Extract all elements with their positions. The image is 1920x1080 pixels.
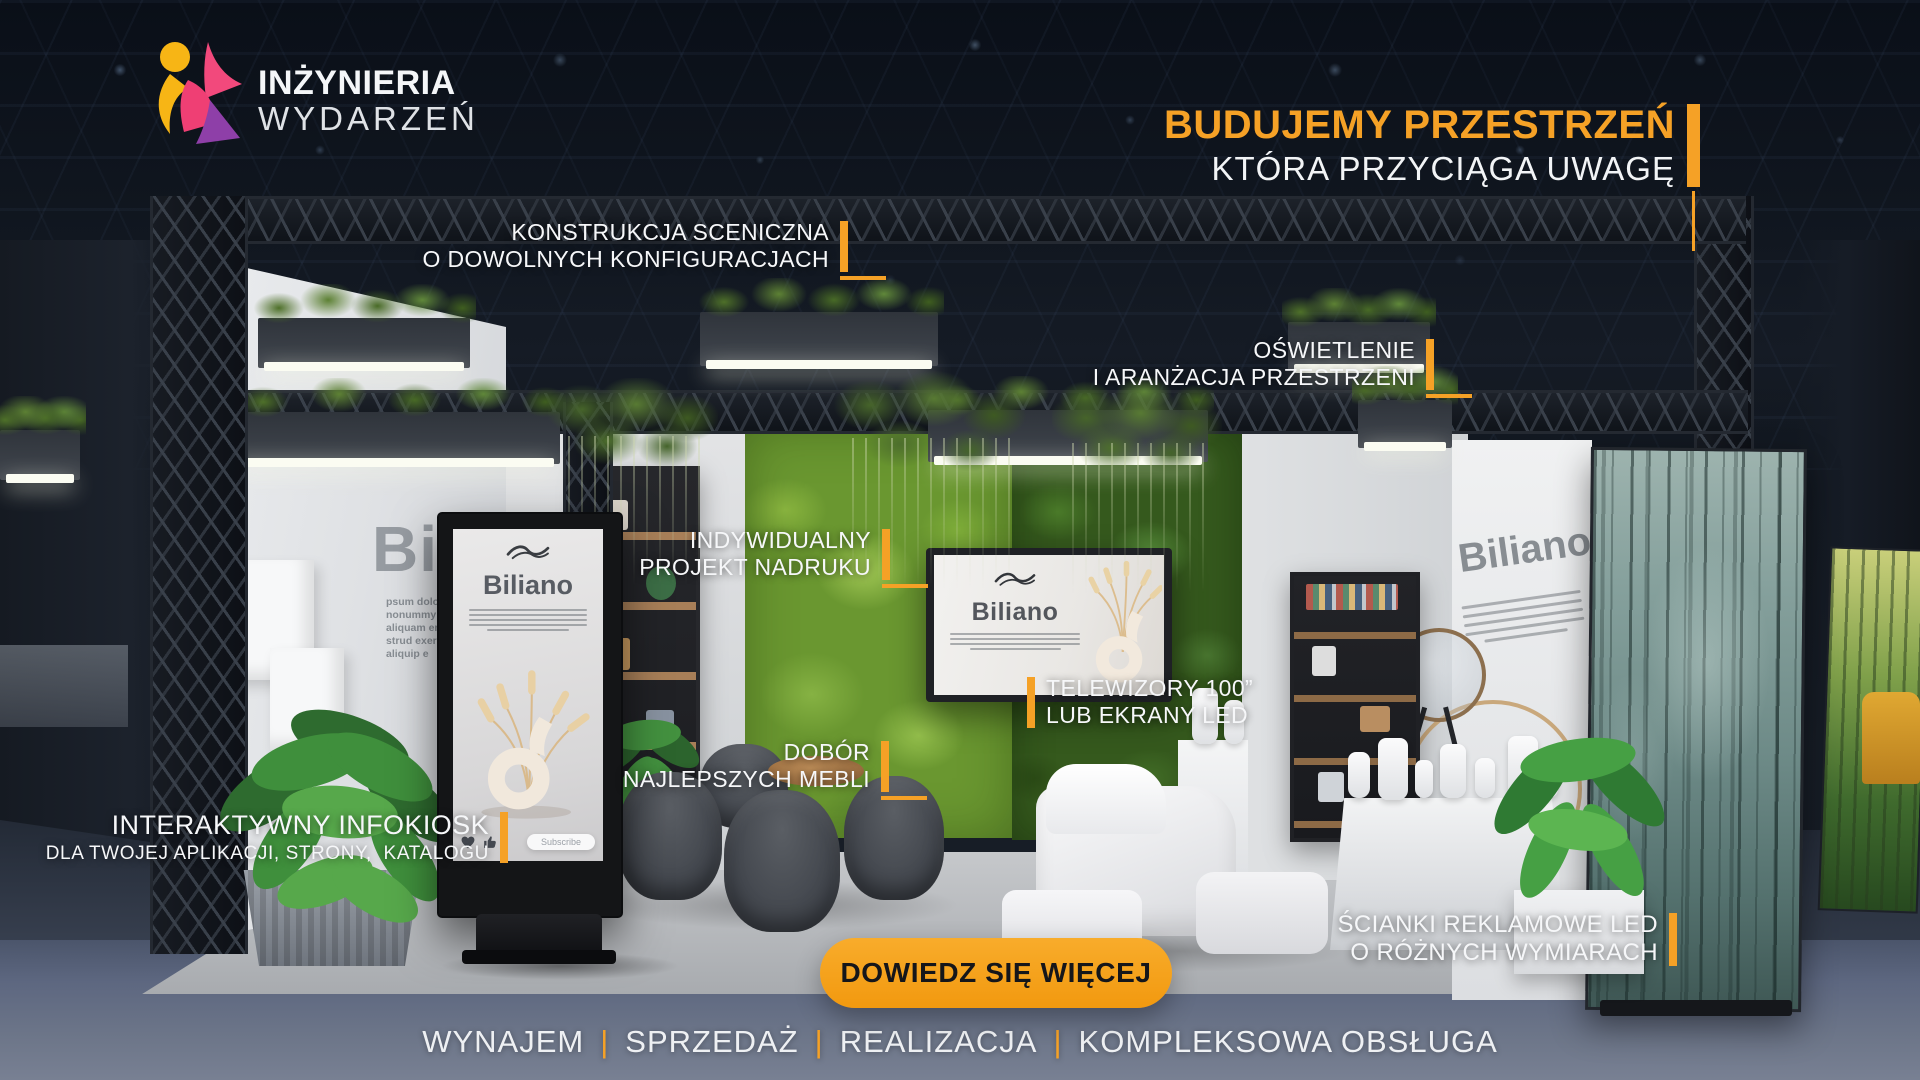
- truss-beam-top: [150, 196, 1746, 244]
- callout-dobor-mebli: DOBÓR NAJLEPSZYCH MEBLI: [623, 741, 889, 792]
- callout-text: INTERAKTYWNY INFOKIOSK DLA TWOJEJ APLIKA…: [46, 812, 489, 863]
- callout-line1: DOBÓR: [623, 741, 870, 764]
- company-logo: INŻYNIERIA WYDARZEŃ: [148, 40, 479, 150]
- service-separator: |: [1053, 1024, 1062, 1060]
- display-vase: [1440, 744, 1466, 798]
- headline-line2: KTÓRA PRZYCIĄGA UWAGĘ: [1164, 151, 1675, 187]
- callout-line2: O RÓŻNYCH WYMIARACH: [1338, 941, 1658, 965]
- display-vase: [1348, 752, 1370, 798]
- background-counter: [0, 645, 128, 727]
- kiosk-paragraph-placeholder: [469, 609, 587, 631]
- callout-accent-bar: [1669, 913, 1677, 966]
- biliano-wave-icon: [505, 541, 551, 563]
- potted-plant-right: [1478, 700, 1678, 930]
- callout-text: TELEWIZORY 100” LUB EKRANY LED: [1046, 677, 1253, 728]
- kiosk-brand-text: Biliano: [453, 570, 603, 601]
- hanging-plants: [830, 366, 1030, 496]
- tv-paragraph-placeholder: [950, 633, 1080, 650]
- text-line: [487, 629, 570, 631]
- callout-line1: INTERAKTYWNY INFOKIOSK: [46, 812, 489, 840]
- text-line: [469, 624, 587, 626]
- armchair: [844, 776, 944, 900]
- logo-line2: WYDARZEŃ: [258, 102, 479, 135]
- main-headline: BUDUJEMY PRZESTRZEŃ KTÓRA PRZYCIĄGA UWAG…: [1164, 104, 1700, 187]
- service-item: REALIZACJA: [840, 1024, 1038, 1060]
- hanging-light-box: [258, 318, 470, 368]
- callout-line1: INDYWIDUALNY: [639, 529, 871, 552]
- hanging-plants: [548, 378, 718, 483]
- white-pouf: [1196, 872, 1328, 954]
- service-separator: |: [815, 1024, 824, 1060]
- text-line: [469, 614, 587, 616]
- callout-infokiosk: INTERAKTYWNY INFOKIOSK DLA TWOJEJ APLIKA…: [46, 812, 508, 863]
- service-item: SPRZEDAŻ: [625, 1024, 798, 1060]
- display-vase: [1415, 760, 1433, 798]
- hanging-light-box: [0, 430, 80, 480]
- callout-line1: TELEWIZORY 100”: [1046, 677, 1253, 700]
- callout-line2: PROJEKT NADRUKU: [639, 556, 871, 579]
- books-row: [1306, 584, 1398, 610]
- callout-line2: O DOWOLNYCH KONFIGURACJACH: [422, 248, 829, 271]
- callout-konstrukcja-sceniczna: KONSTRUKCJA SCENICZNA O DOWOLNYCH KONFIG…: [422, 221, 848, 272]
- text-line: [469, 609, 587, 611]
- callout-accent-bar: [882, 529, 890, 580]
- service-item: KOMPLEKSOWA OBSŁUGA: [1079, 1024, 1498, 1060]
- callout-oswietlenie: OŚWIETLENIE I ARANŻACJA PRZESTRZENI: [1093, 339, 1434, 390]
- headline-text: BUDUJEMY PRZESTRZEŃ KTÓRA PRZYCIĄGA UWAG…: [1164, 104, 1675, 187]
- text-line: [950, 643, 1080, 645]
- wheat-vase-image: [459, 659, 599, 829]
- services-row: WYNAJEM | SPRZEDAŻ | REALIZACJA | KOMPLE…: [0, 1024, 1920, 1060]
- led-wall-base: [1600, 1000, 1792, 1016]
- hanging-light-box: [228, 412, 560, 464]
- callout-line2: LUB EKRANY LED: [1046, 704, 1253, 727]
- callout-line2: I ARANŻACJA PRZESTRZENI: [1093, 366, 1415, 389]
- headline-accent-bar: [1687, 104, 1700, 187]
- callout-accent-bar: [1027, 677, 1035, 728]
- text-line: [970, 648, 1061, 650]
- kiosk-content: Biliano: [453, 541, 603, 634]
- kiosk-foot: [462, 950, 616, 964]
- callout-line1: ŚCIANKI REKLAMOWE LED: [1338, 913, 1658, 937]
- callout-scianki-led: ŚCIANKI REKLAMOWE LED O RÓŻNYCH WYMIARAC…: [1338, 913, 1677, 966]
- text-line: [469, 619, 587, 621]
- poster-canvas: Bil psum dolor sit nonummy nib aliquam e…: [0, 0, 1920, 1080]
- armchair: [724, 790, 840, 932]
- text-line: [950, 638, 1080, 640]
- callout-text: INDYWIDUALNY PROJEKT NADRUKU: [639, 529, 871, 580]
- shelf-item: [1318, 772, 1344, 802]
- yellow-chair: [1862, 692, 1920, 784]
- shelf-item: [1312, 646, 1336, 676]
- hanging-light-box: [1358, 400, 1452, 448]
- display-vase: [1378, 738, 1408, 800]
- shelf-item: [1360, 706, 1390, 732]
- headline-line1: BUDUJEMY PRZESTRZEŃ: [1164, 104, 1675, 146]
- text-line: [950, 633, 1080, 635]
- callout-accent-bar: [1426, 339, 1434, 390]
- callout-line1: OŚWIETLENIE: [1093, 339, 1415, 362]
- hanging-plants: [1052, 388, 1222, 488]
- callout-line1: KONSTRUKCJA SCENICZNA: [422, 221, 829, 244]
- learn-more-button[interactable]: DOWIEDZ SIĘ WIĘCEJ: [820, 938, 1172, 1008]
- callout-projekt-nadruku: INDYWIDUALNY PROJEKT NADRUKU: [639, 529, 890, 580]
- callout-line2: NAJLEPSZYCH MEBLI: [623, 768, 870, 791]
- kiosk-subscribe-button: Subscribe: [527, 834, 595, 850]
- hanging-light-box: [700, 312, 938, 366]
- callout-text: DOBÓR NAJLEPSZYCH MEBLI: [623, 741, 870, 792]
- service-item: WYNAJEM: [422, 1024, 584, 1060]
- tv-brand-text: Biliano: [950, 598, 1080, 627]
- callout-text: ŚCIANKI REKLAMOWE LED O RÓŻNYCH WYMIARAC…: [1338, 913, 1658, 966]
- logo-figure-icon: [148, 40, 248, 150]
- brand-wall-paragraph-placeholder: [1461, 590, 1586, 651]
- brand-wall-logo-text: Biliano: [1456, 519, 1592, 582]
- callout-accent-bar: [500, 812, 508, 863]
- callout-text: KONSTRUKCJA SCENICZNA O DOWOLNYCH KONFIG…: [422, 221, 829, 272]
- callout-accent-bar: [840, 221, 848, 272]
- service-separator: |: [600, 1024, 609, 1060]
- callout-line2: DLA TWOJEJ APLIKACJI, STRONY, KATALOGU: [46, 844, 489, 863]
- logo-line1: INŻYNIERIA: [258, 66, 479, 100]
- callout-telewizory: TELEWIZORY 100” LUB EKRANY LED: [1027, 677, 1253, 728]
- callout-accent-bar: [881, 741, 889, 792]
- callout-text: OŚWIETLENIE I ARANŻACJA PRZESTRZENI: [1093, 339, 1415, 390]
- logo-wordmark: INŻYNIERIA WYDARZEŃ: [258, 66, 479, 135]
